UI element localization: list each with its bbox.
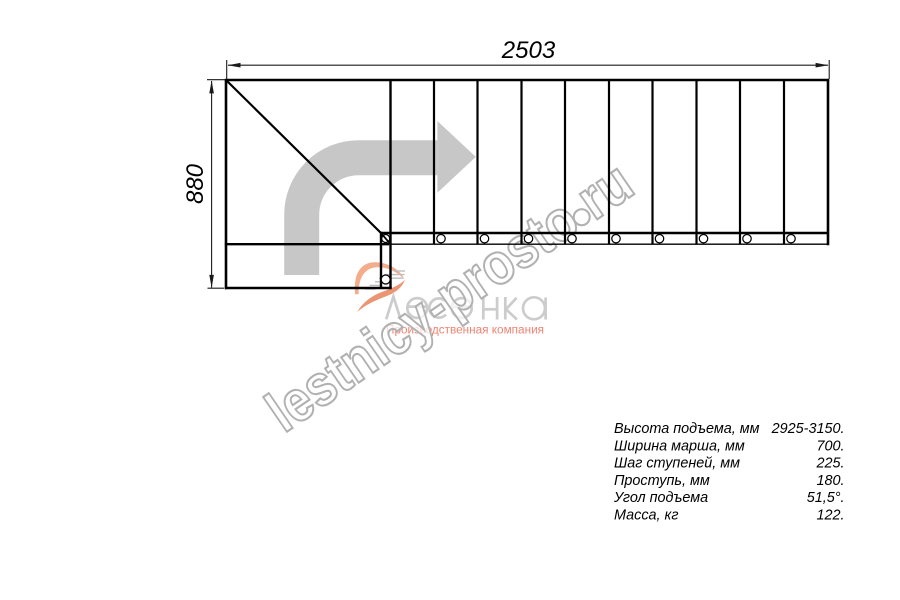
svg-text:Проступь, мм: Проступь, мм: [614, 473, 710, 489]
svg-text:880: 880: [182, 163, 209, 204]
svg-text:Угол подъема: Угол подъема: [613, 490, 708, 506]
svg-text:2925-3150.: 2925-3150.: [771, 421, 845, 437]
svg-text:2503: 2503: [501, 37, 556, 64]
svg-text:700.: 700.: [816, 438, 844, 454]
svg-text:Шаг ступеней, мм: Шаг ступеней, мм: [614, 456, 740, 472]
svg-text:225.: 225.: [815, 456, 844, 472]
svg-text:Ширина марша, мм: Ширина марша, мм: [614, 438, 745, 454]
svg-text:122.: 122.: [816, 508, 844, 524]
svg-text:Масса, кг: Масса, кг: [614, 508, 678, 524]
svg-text:51,5°.: 51,5°.: [807, 490, 845, 506]
svg-text:180.: 180.: [816, 473, 844, 489]
svg-text:Высота подъема, мм: Высота подъема, мм: [614, 421, 760, 437]
